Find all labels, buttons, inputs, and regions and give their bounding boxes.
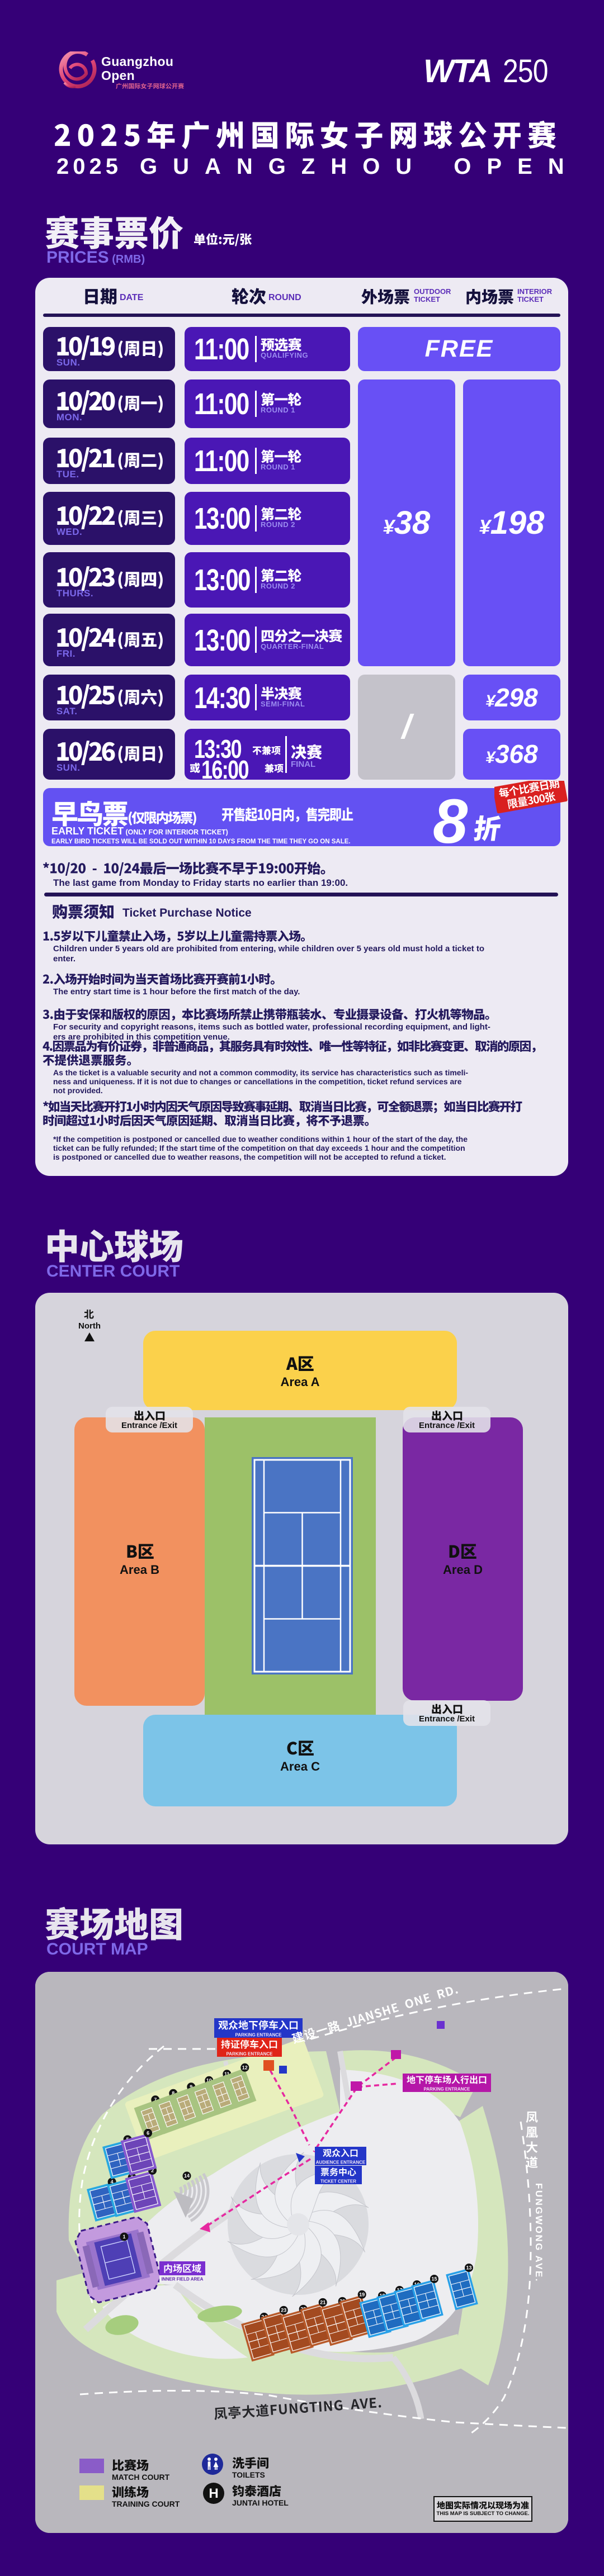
svg-text:H: H — [209, 2486, 218, 2501]
svg-text:14: 14 — [184, 2173, 190, 2179]
svg-text:15: 15 — [431, 2276, 437, 2282]
svg-text:INNER FIELD AREA: INNER FIELD AREA — [162, 2277, 204, 2282]
svg-text:6: 6 — [147, 2131, 149, 2136]
svg-text:PARKING ENTRANCE: PARKING ENTRANCE — [226, 2052, 273, 2057]
svg-text:12: 12 — [242, 2065, 248, 2070]
svg-text:23: 23 — [281, 2308, 286, 2313]
svg-text:PARKING ENTRANCE: PARKING ENTRANCE — [235, 2033, 282, 2038]
svg-text:FUNGWONG AVE.: FUNGWONG AVE. — [534, 2183, 544, 2283]
svg-text:AUDIENCE ENTRANCE: AUDIENCE ENTRANCE — [316, 2160, 366, 2165]
svg-text:13: 13 — [466, 2265, 471, 2271]
svg-text:PARKING ENTRANCE: PARKING ENTRANCE — [424, 2087, 471, 2092]
svg-text:19: 19 — [359, 2292, 365, 2298]
svg-text:21: 21 — [320, 2300, 325, 2305]
svg-text:1: 1 — [122, 2234, 125, 2240]
svg-text:TICKET CENTER: TICKET CENTER — [320, 2179, 356, 2184]
